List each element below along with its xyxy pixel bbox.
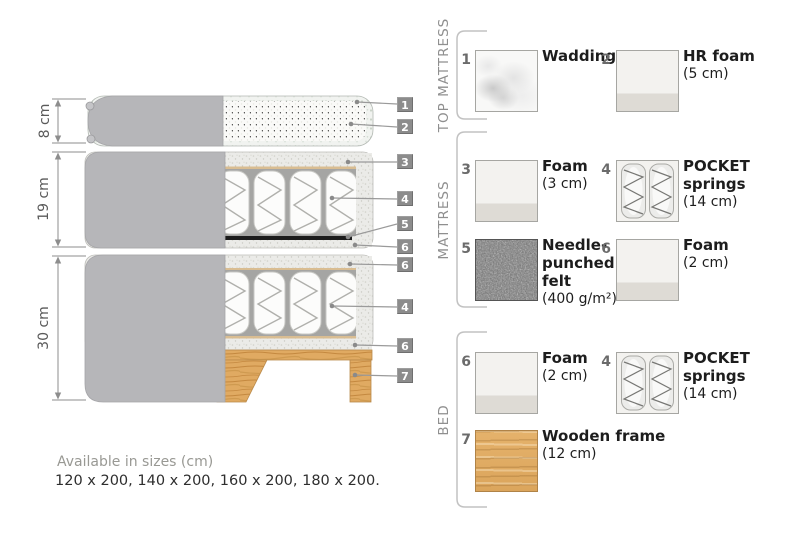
legend-item-size: (3 cm): [542, 175, 588, 193]
legend-item-name: POCKET springs: [683, 157, 765, 193]
callout-7: 7: [397, 368, 413, 383]
legend-item-name: HR foam: [683, 47, 755, 65]
legend-item-name: Foam: [683, 236, 729, 254]
callout-6b: 6: [397, 257, 413, 272]
swatch-bed-pocket-springs: [616, 352, 679, 414]
dimension-label-8cm: 8 cm: [36, 91, 54, 151]
legend-label-foam3: Foam (3 cm): [542, 157, 588, 193]
mattress-drawing: [85, 152, 373, 248]
legend-num-pocket-springs: 4: [587, 162, 611, 178]
legend-item-name: Needle-punched felt: [542, 236, 624, 290]
legend-num-hr-foam: 2: [587, 52, 611, 68]
legend-num-foam2: 6: [587, 241, 611, 257]
bed-base-drawing: [85, 255, 373, 402]
pocket-springs-graphic: [617, 353, 678, 413]
callout-6a: 6: [397, 239, 413, 254]
swatch-wadding: [475, 50, 538, 112]
swatch-foam-3cm: [475, 160, 538, 222]
legend-item-size: (2 cm): [683, 254, 729, 272]
legend-item-size: (2 cm): [542, 367, 588, 385]
legend-num-wadding: 1: [447, 52, 471, 68]
legend-label-wooden-frame: Wooden frame (12 cm): [542, 427, 665, 463]
legend-num-felt: 5: [447, 241, 471, 257]
legend-item-size: (14 cm): [683, 385, 765, 403]
legend-num-bed-foam: 6: [447, 354, 471, 370]
legend-label-hr-foam: HR foam (5 cm): [683, 47, 755, 83]
legend-num-foam3: 3: [447, 162, 471, 178]
legend-num-wooden-frame: 7: [447, 432, 471, 448]
legend-label-bed-springs: POCKET springs (14 cm): [683, 349, 765, 403]
legend-item-name: POCKET springs: [683, 349, 765, 385]
legend-item-name: Wooden frame: [542, 427, 665, 445]
top-mattress-drawing: [86, 96, 373, 146]
bed-construction-infographic: 8 cm 19 cm 30 cm 1 2 3 4 5 6 6 4 6 7 TOP…: [0, 0, 800, 533]
available-sizes-values: 120 x 200, 140 x 200, 160 x 200, 180 x 2…: [55, 473, 380, 489]
legend-item-name: Foam: [542, 157, 588, 175]
callout-1: 1: [397, 97, 413, 112]
legend-item-size: (5 cm): [683, 65, 755, 83]
dimension-label-19cm: 19 cm: [35, 169, 53, 229]
legend-label-bed-foam: Foam (2 cm): [542, 349, 588, 385]
legend-label-foam2: Foam (2 cm): [683, 236, 729, 272]
callout-4b: 4: [397, 299, 413, 314]
legend-label-felt: Needle-punched felt (400 g/m²): [542, 236, 624, 308]
pocket-springs-graphic: [617, 161, 678, 221]
callout-3: 3: [397, 154, 413, 169]
swatch-hr-foam: [616, 50, 679, 112]
available-sizes-heading: Available in sizes (cm): [57, 454, 213, 470]
section-title-top-mattress: TOP MATTRESS: [435, 7, 453, 143]
callout-4: 4: [397, 191, 413, 206]
legend-num-bed-springs: 4: [587, 354, 611, 370]
callout-2: 2: [397, 119, 413, 134]
dimension-label-30cm: 30 cm: [35, 298, 53, 358]
legend-item-size: (12 cm): [542, 445, 665, 463]
legend-label-pocket-springs: POCKET springs (14 cm): [683, 157, 765, 211]
swatch-needle-punched-felt: [475, 239, 538, 301]
callout-5: 5: [397, 216, 413, 231]
legend-item-size: (14 cm): [683, 193, 765, 211]
callout-6c: 6: [397, 338, 413, 353]
swatch-foam-2cm: [616, 239, 679, 301]
swatch-wooden-frame: [475, 430, 538, 492]
felt-texture: [476, 240, 537, 300]
section-title-bed: BED: [435, 352, 453, 488]
legend-item-name: Foam: [542, 349, 588, 367]
swatch-bed-foam-2cm: [475, 352, 538, 414]
legend-item-size: (400 g/m²): [542, 290, 624, 308]
swatch-pocket-springs: [616, 160, 679, 222]
dimension-arrows: [52, 99, 86, 400]
